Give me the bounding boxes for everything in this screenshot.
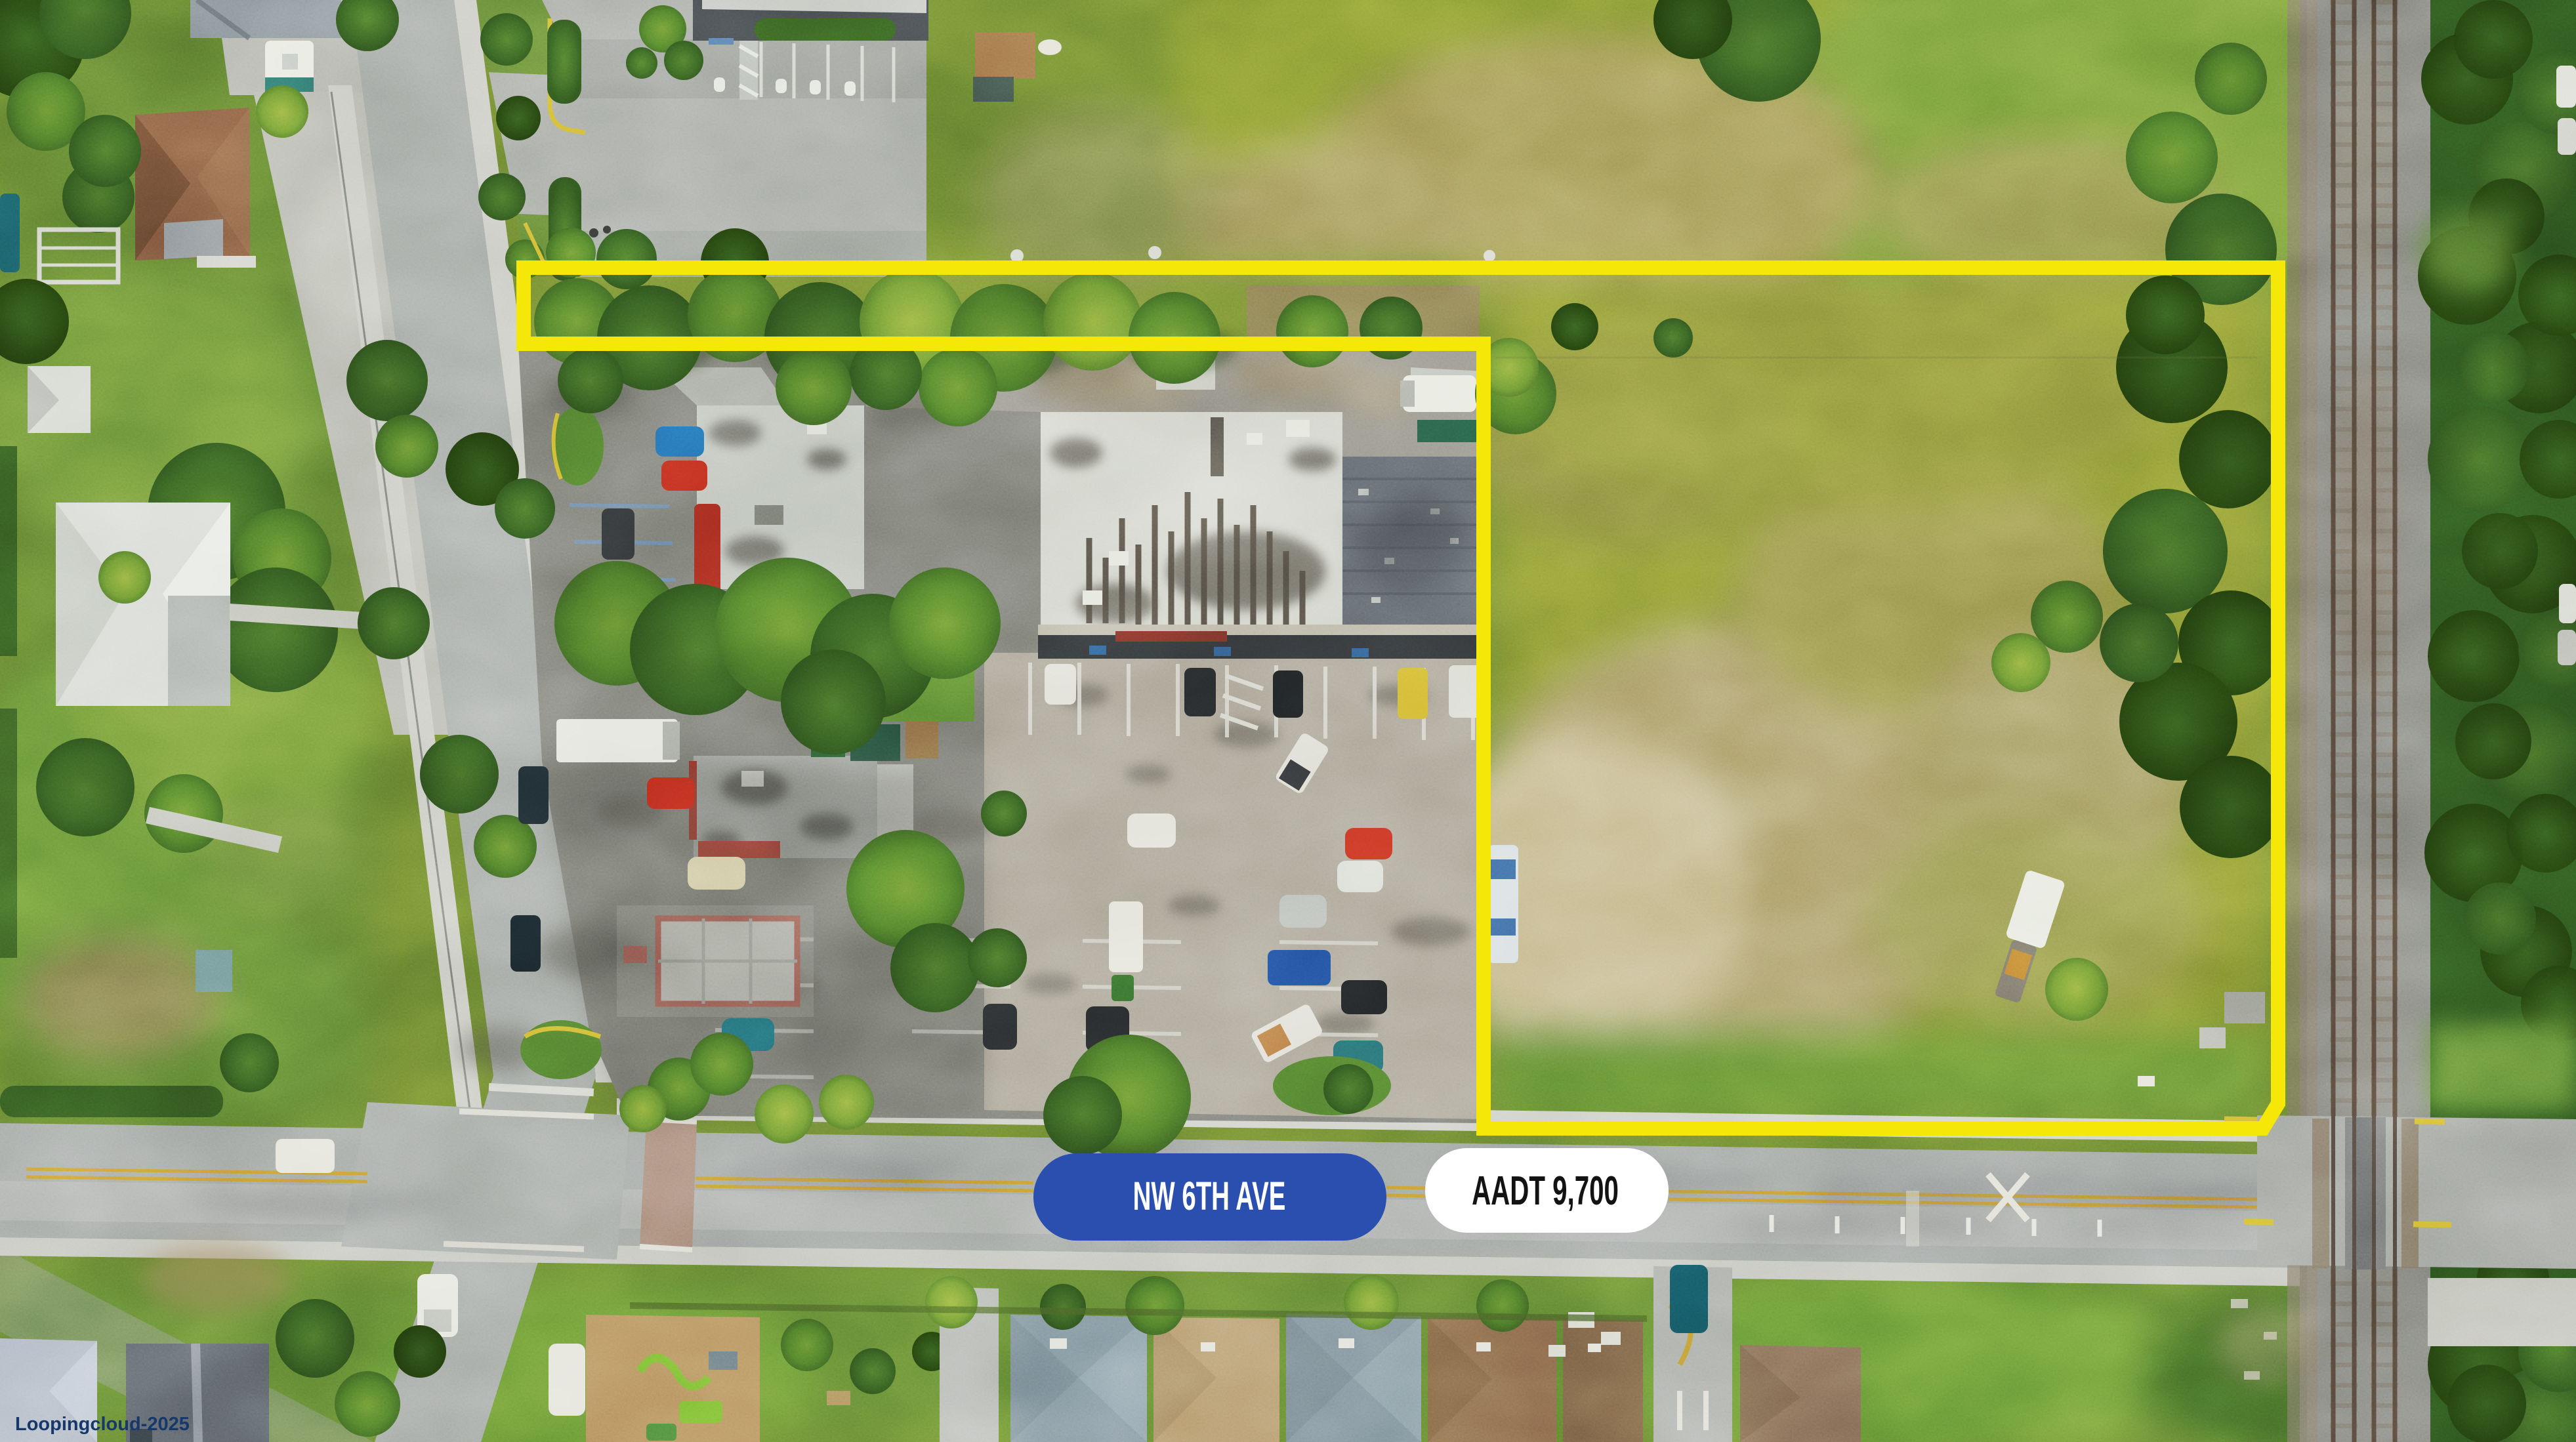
svg-text:Loopingcloud-2025: Loopingcloud-2025 (15, 1414, 190, 1435)
svg-text:NW 6TH AVE: NW 6TH AVE (1133, 1174, 1286, 1218)
svg-text:AADT 9,700: AADT 9,700 (1472, 1168, 1619, 1214)
